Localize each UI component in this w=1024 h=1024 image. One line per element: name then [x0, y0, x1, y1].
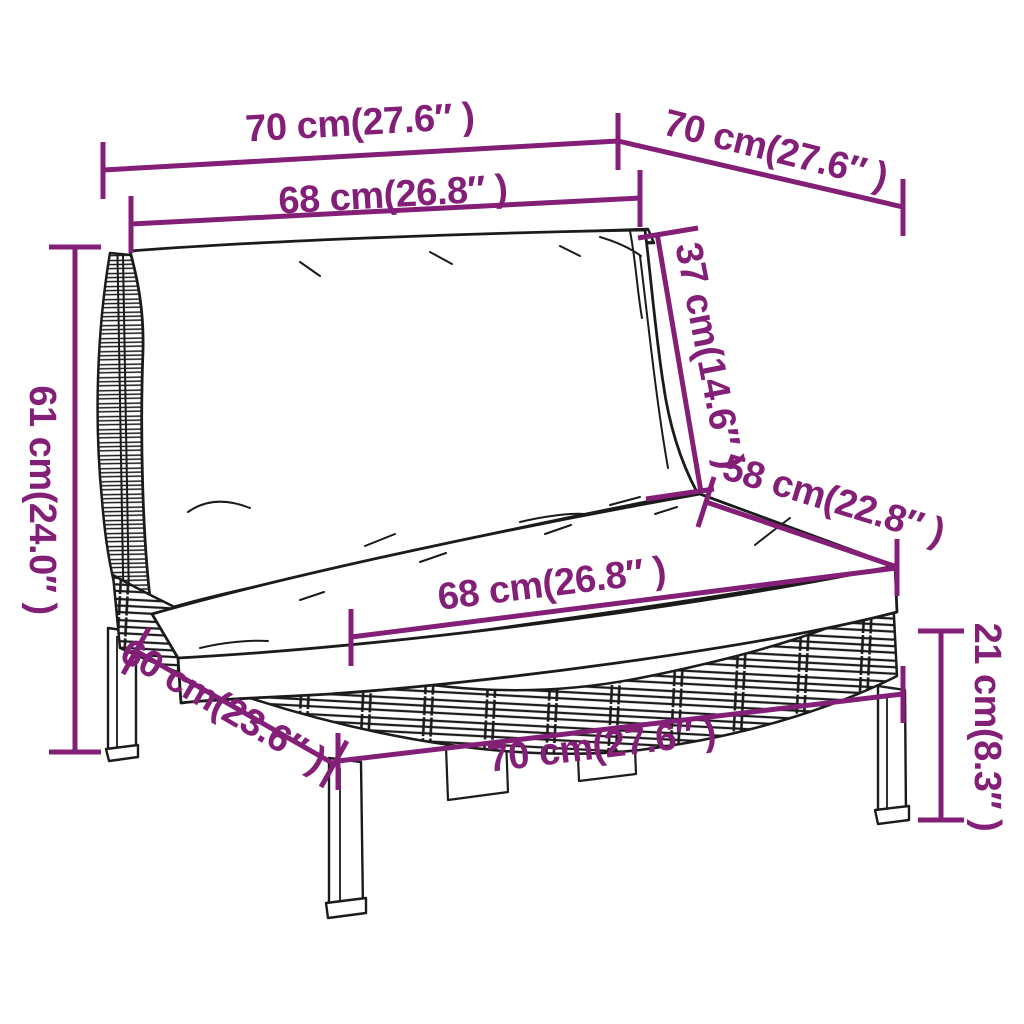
- dim-leg-height-line: [918, 631, 964, 820]
- diagram-svg: 70 cm(27.6″ ) 70 cm(27.6″ ) 68 cm(26.8″ …: [0, 0, 1024, 1024]
- dim-left-height-label: 61 cm(24.0″ ): [21, 385, 63, 614]
- dim-top-width-label: 70 cm(27.6″ ): [244, 95, 475, 150]
- leg-front: [326, 758, 366, 918]
- dim-left-height: 61 cm(24.0″ ): [21, 247, 101, 752]
- dim-top-depth-label: 70 cm(27.6″ ): [659, 102, 892, 198]
- dim-back-width-label: 68 cm(26.8″ ): [277, 167, 508, 222]
- dim-leg-height-label: 21 cm(8.3″ ): [966, 623, 1008, 832]
- dim-leg-height: 21 cm(8.3″ ): [918, 623, 1008, 832]
- dimension-diagram: 70 cm(27.6″ ) 70 cm(27.6″ ) 68 cm(26.8″ …: [0, 0, 1024, 1024]
- dim-top-depth: 70 cm(27.6″ ): [618, 102, 903, 236]
